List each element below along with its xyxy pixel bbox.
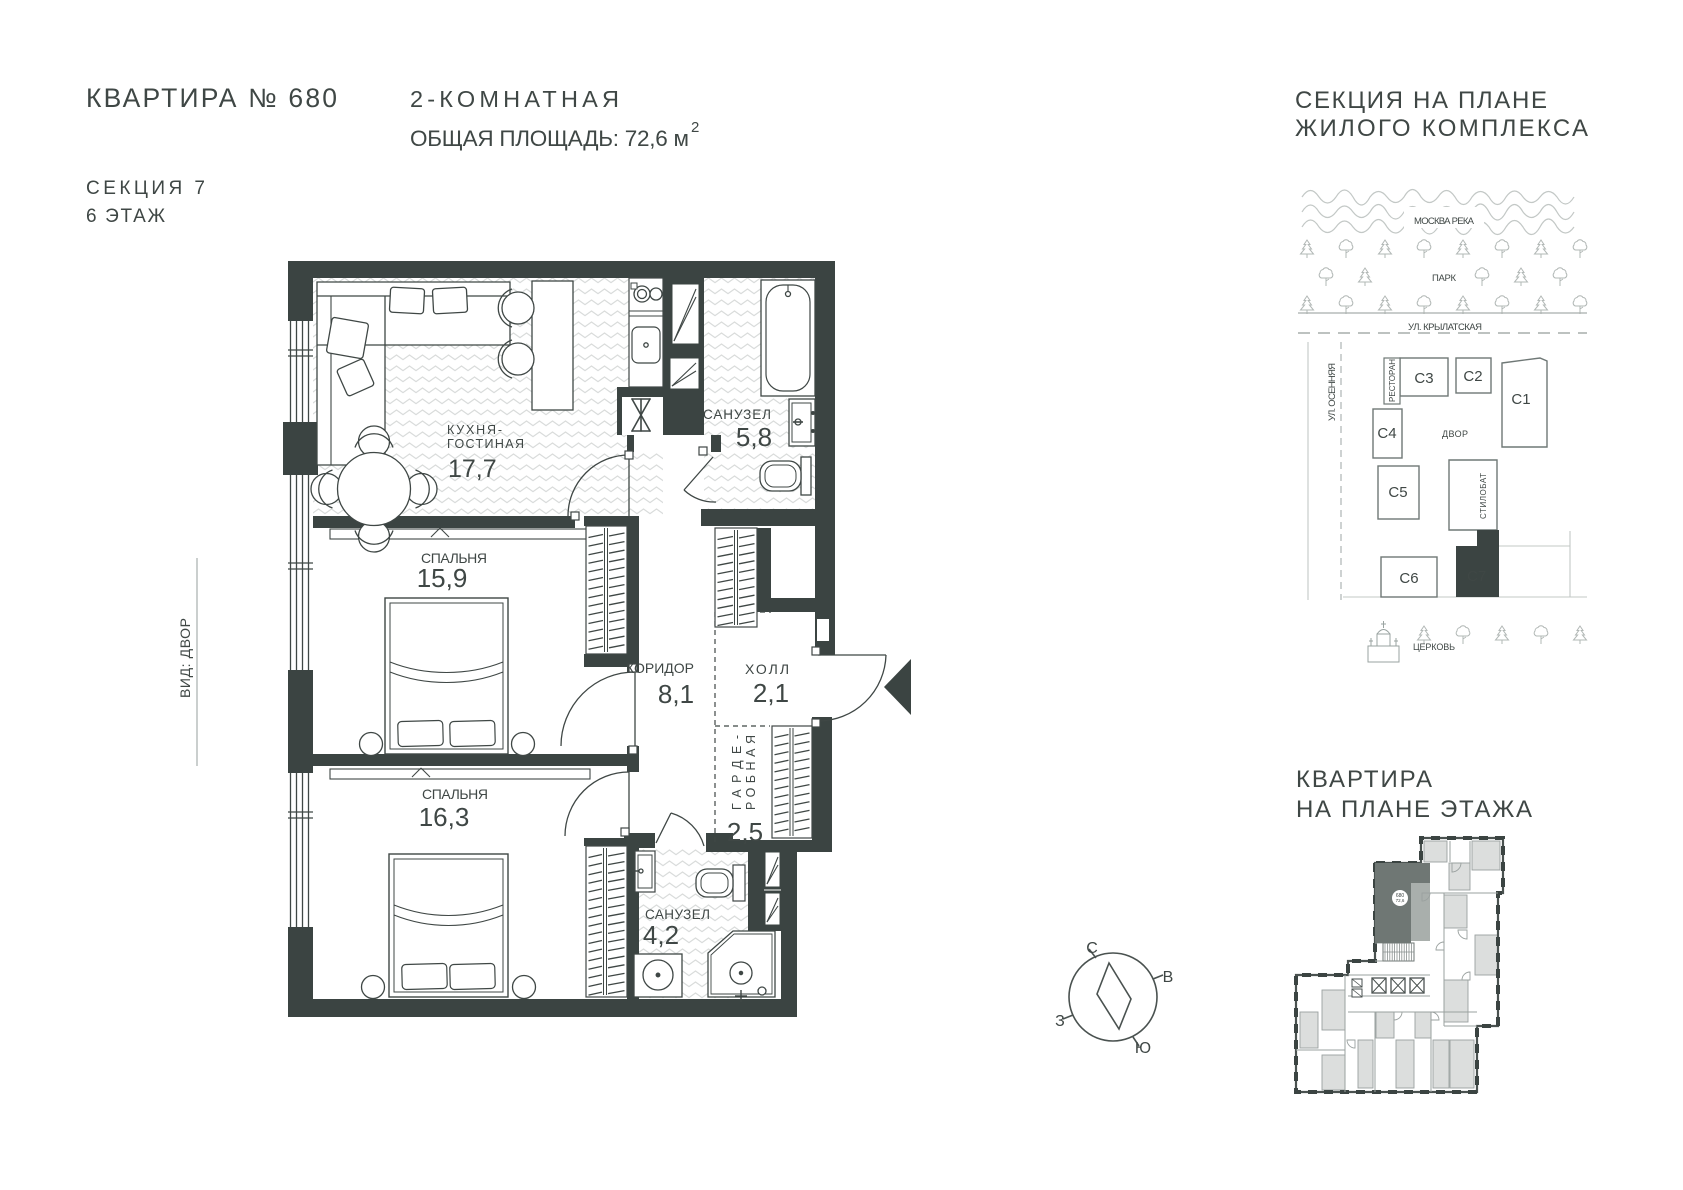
svg-text:6 ЭТАЖ: 6 ЭТАЖ — [86, 206, 165, 227]
svg-text:ЖИЛОГО КОМПЛЕКСА: ЖИЛОГО КОМПЛЕКСА — [1295, 115, 1588, 142]
svg-text:УЛ. КРЫЛАТСКАЯ: УЛ. КРЫЛАТСКАЯ — [1408, 322, 1482, 333]
svg-text:ГОСТИНАЯ: ГОСТИНАЯ — [447, 437, 524, 451]
svg-text:С5: С5 — [1388, 484, 1407, 501]
svg-text:16,3: 16,3 — [419, 802, 470, 832]
svg-text:2,1: 2,1 — [753, 678, 789, 708]
svg-text:КВАРТИРА № 680: КВАРТИРА № 680 — [86, 83, 337, 113]
svg-text:КВАРТИРА: КВАРТИРА — [1296, 766, 1432, 793]
svg-text:С4: С4 — [1377, 425, 1396, 442]
svg-text:В: В — [1163, 969, 1174, 986]
svg-text:С2: С2 — [1463, 368, 1482, 385]
svg-text:СПАЛЬНЯ: СПАЛЬНЯ — [422, 786, 488, 802]
svg-text:72,6: 72,6 — [1396, 898, 1405, 903]
svg-text:4,2: 4,2 — [643, 920, 679, 950]
svg-text:УЛ. ОСЕННЯЯ: УЛ. ОСЕННЯЯ — [1327, 363, 1338, 421]
svg-text:17,7: 17,7 — [448, 455, 497, 483]
svg-text:ЦЕРКОВЬ: ЦЕРКОВЬ — [1413, 642, 1455, 652]
svg-text:ОБЩАЯ ПЛОЩАДЬ: 72,6 м: ОБЩАЯ ПЛОЩАДЬ: 72,6 м — [410, 126, 689, 151]
svg-text:С: С — [1086, 940, 1098, 957]
svg-text:С3: С3 — [1414, 370, 1433, 387]
svg-text:СЕКЦИЯ 7: СЕКЦИЯ 7 — [86, 178, 205, 199]
svg-text:Ю: Ю — [1135, 1040, 1151, 1057]
svg-text:С7: С7 — [1467, 568, 1486, 585]
svg-text:15,9: 15,9 — [417, 563, 468, 593]
svg-text:8,1: 8,1 — [658, 679, 694, 709]
svg-text:СЕКЦИЯ НА ПЛАНЕ: СЕКЦИЯ НА ПЛАНЕ — [1295, 87, 1547, 114]
svg-text:З: З — [1055, 1013, 1065, 1030]
svg-text:РЕСТОРАН: РЕСТОРАН — [1388, 359, 1397, 402]
svg-text:2-КОМНАТНАЯ: 2-КОМНАТНАЯ — [410, 86, 619, 112]
svg-text:КОРИДОР: КОРИДОР — [626, 660, 694, 676]
svg-text:ВИД: ДВОР: ВИД: ДВОР — [177, 618, 193, 698]
svg-text:САНУЗЕЛ: САНУЗЕЛ — [703, 407, 771, 422]
svg-text:5,8: 5,8 — [736, 422, 772, 452]
svg-text:СТИЛОБАТ: СТИЛОБАТ — [1479, 473, 1488, 519]
svg-text:2: 2 — [691, 119, 699, 136]
svg-text:С6: С6 — [1399, 570, 1418, 587]
svg-text:ПАРК: ПАРК — [1432, 273, 1456, 284]
svg-text:2,5: 2,5 — [727, 817, 763, 847]
svg-text:ДВОР: ДВОР — [1442, 429, 1468, 439]
svg-text:МОСКВА РЕКА: МОСКВА РЕКА — [1414, 216, 1475, 227]
svg-text:С1: С1 — [1511, 391, 1530, 408]
